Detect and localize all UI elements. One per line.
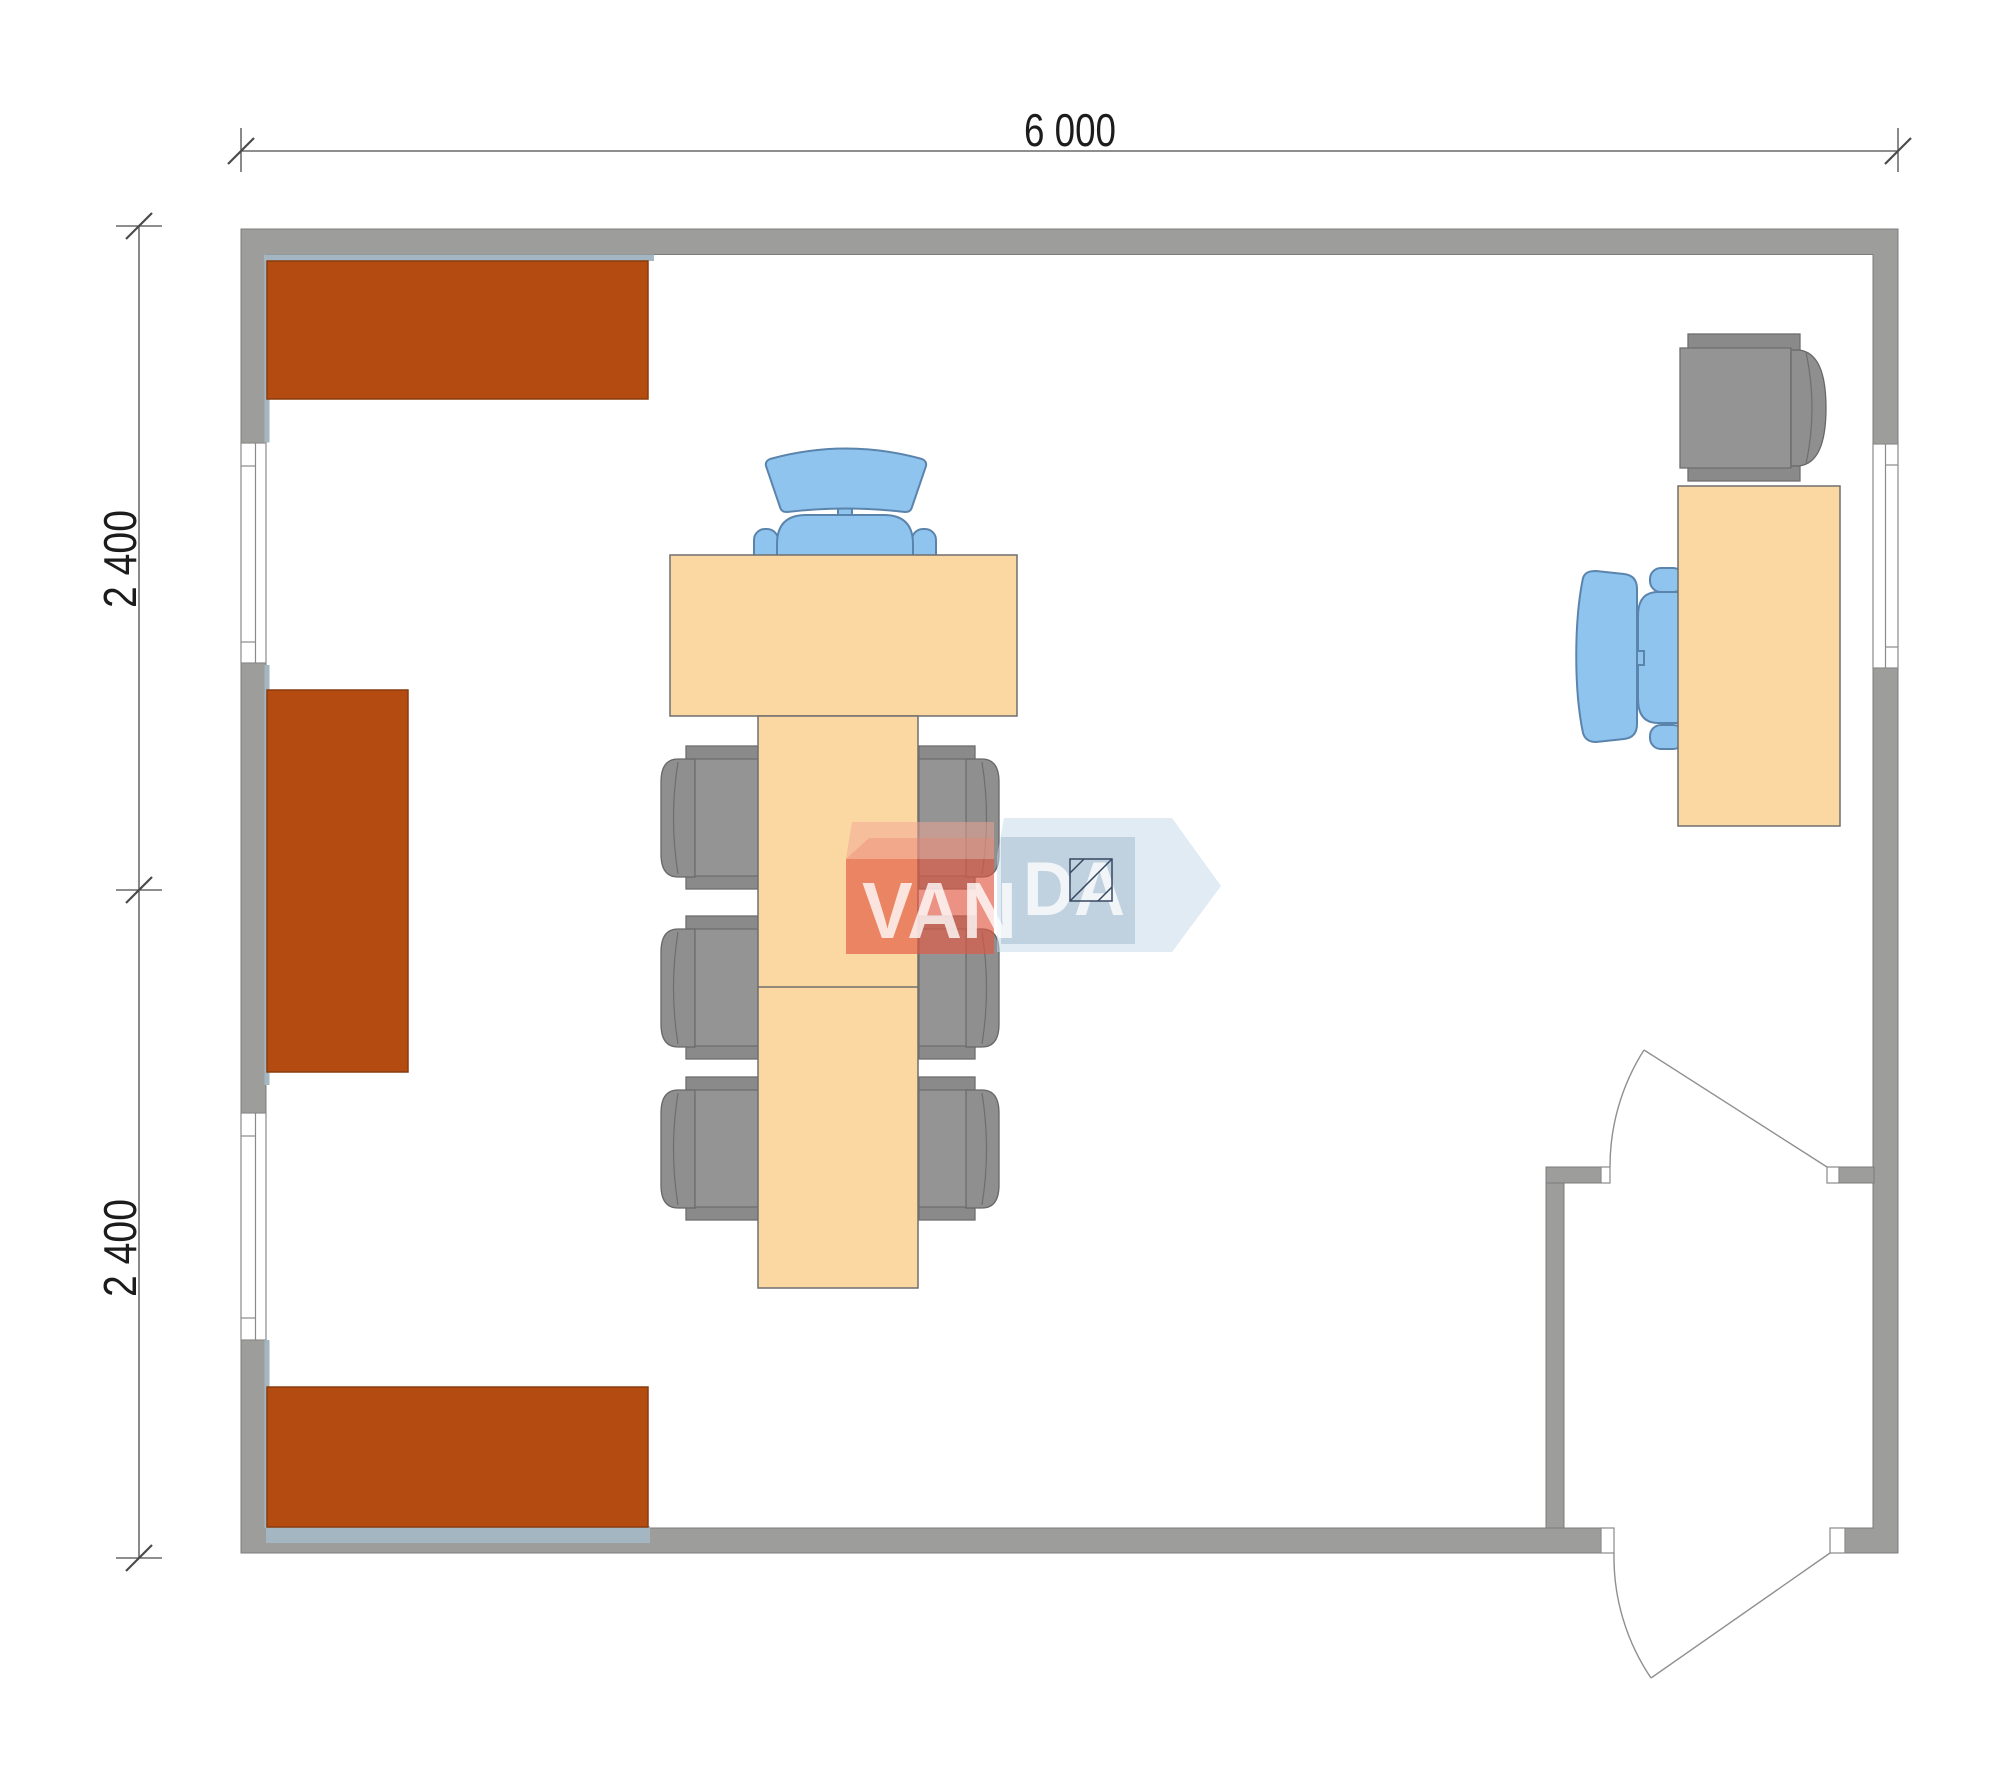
svg-text:6 000: 6 000 bbox=[1024, 104, 1116, 156]
svg-text:2 400: 2 400 bbox=[94, 510, 146, 608]
svg-text:VAN: VAN bbox=[862, 866, 1017, 955]
svg-text:2 400: 2 400 bbox=[94, 1199, 146, 1297]
